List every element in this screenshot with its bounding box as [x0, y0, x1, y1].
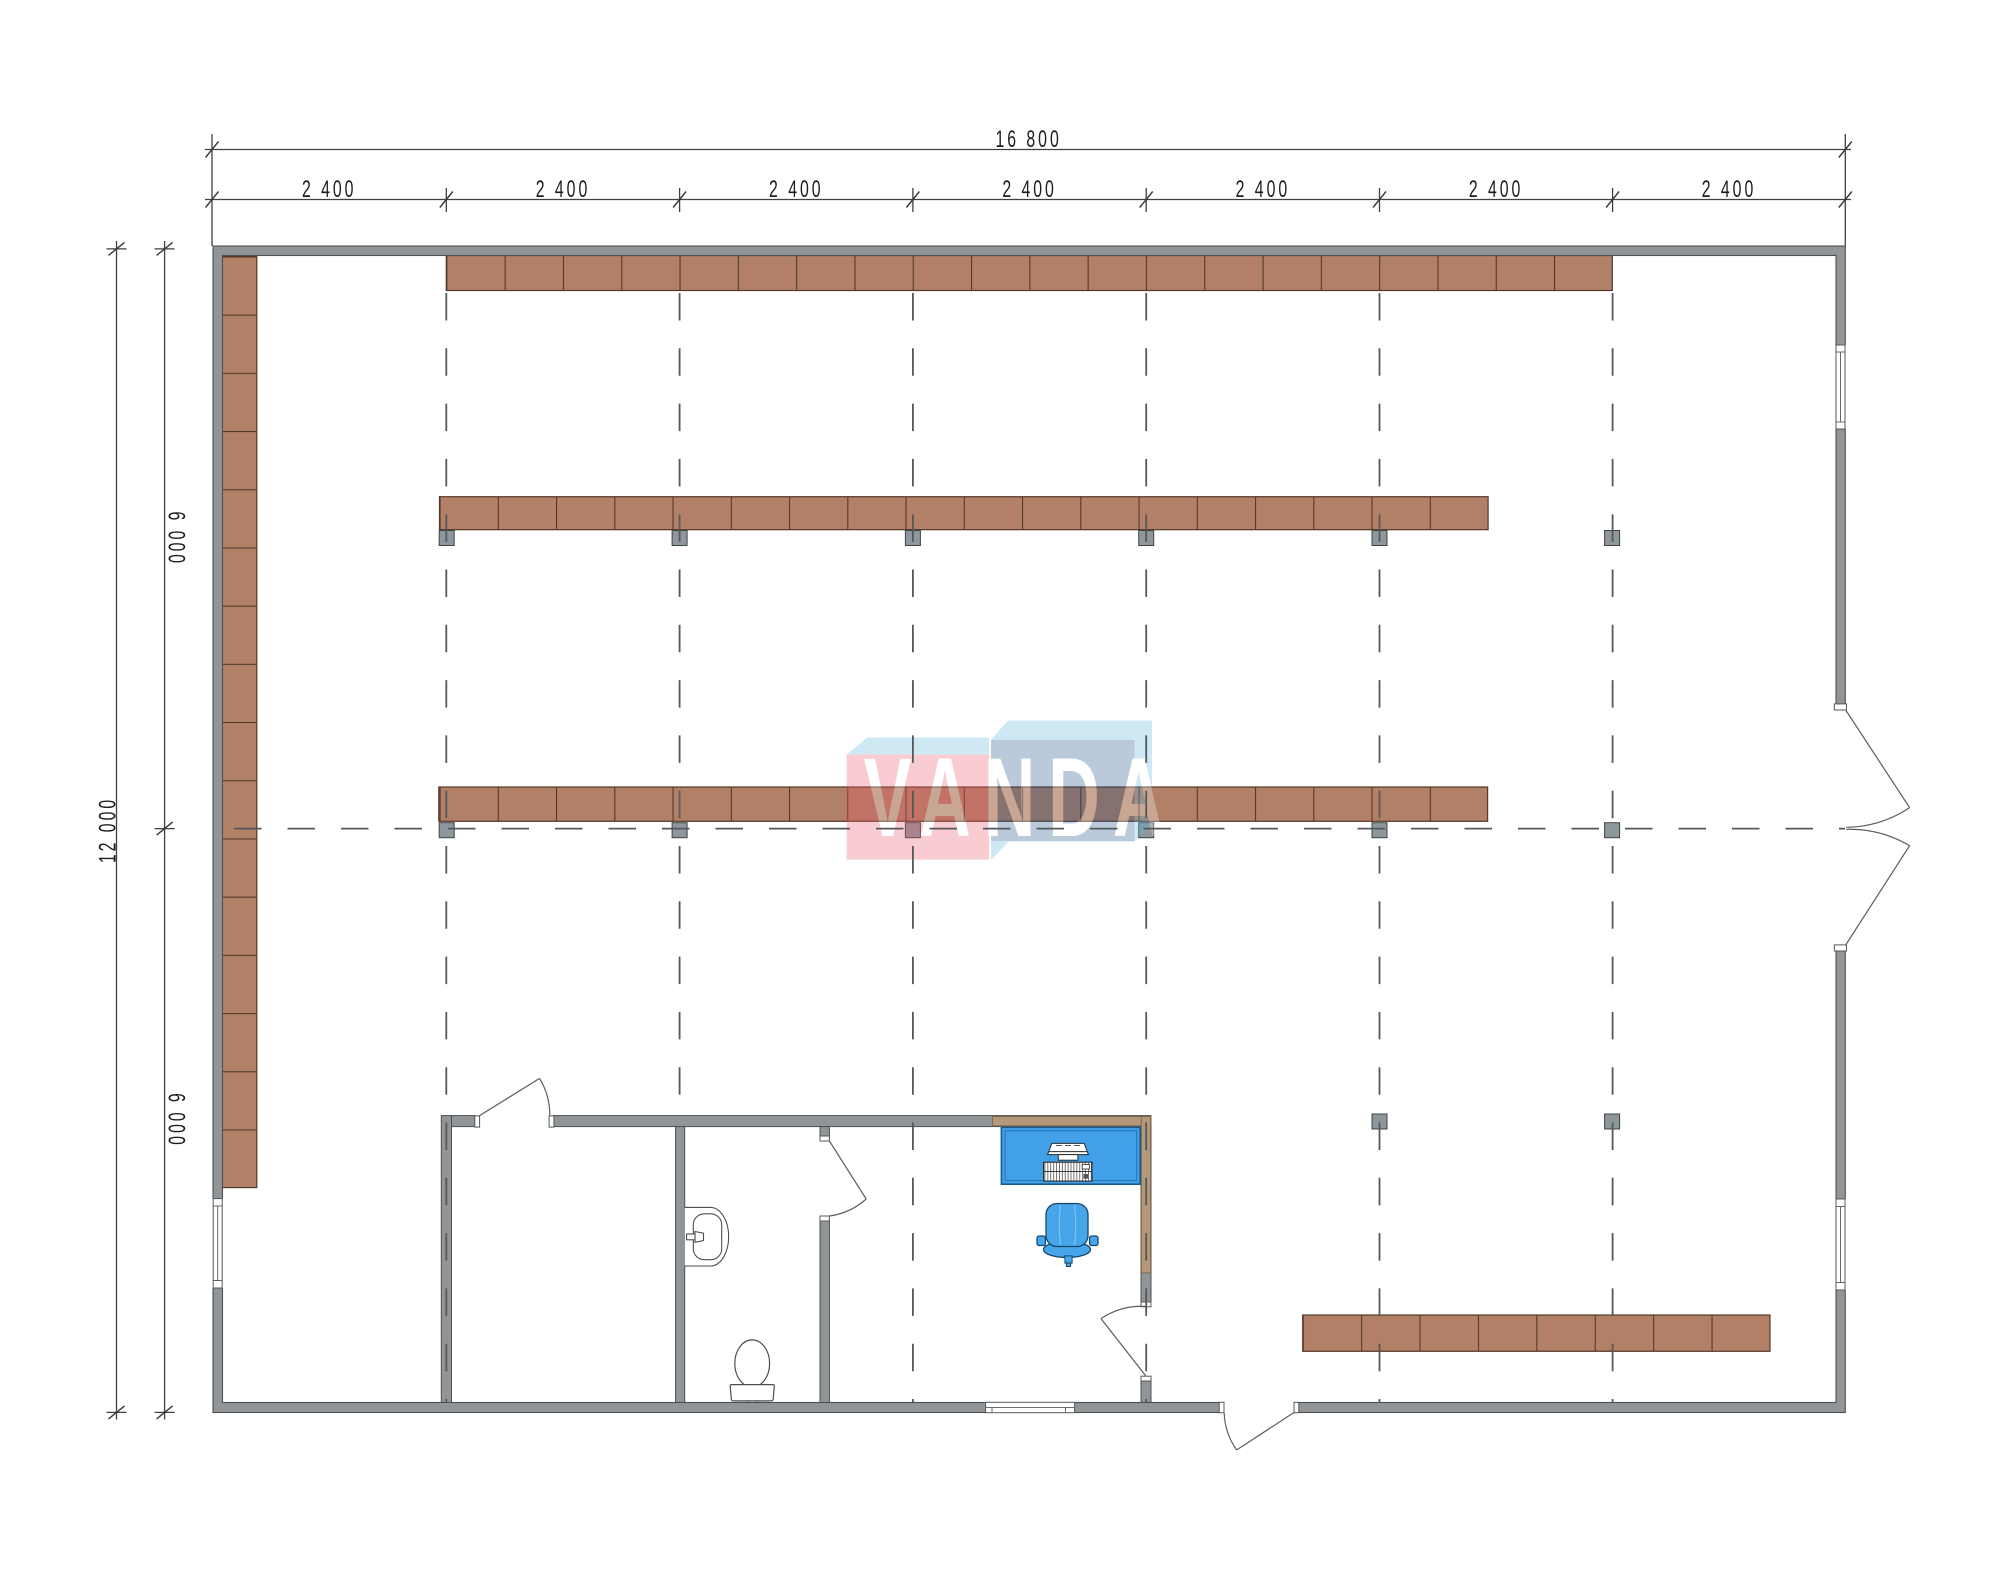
svg-text:2 400: 2 400: [1702, 177, 1756, 203]
svg-text:16 800: 16 800: [995, 127, 1061, 153]
svg-text:6 000: 6 000: [163, 1093, 189, 1147]
svg-text:2 400: 2 400: [302, 177, 356, 203]
svg-text:6 000: 6 000: [163, 512, 189, 566]
svg-text:2 400: 2 400: [536, 177, 590, 203]
svg-text:2 400: 2 400: [1002, 177, 1056, 203]
svg-text:2 400: 2 400: [1236, 177, 1290, 203]
svg-text:2 400: 2 400: [1469, 177, 1523, 203]
svg-text:VANDA: VANDA: [864, 735, 1178, 860]
svg-text:12 000: 12 000: [95, 797, 121, 863]
svg-text:2 400: 2 400: [769, 177, 823, 203]
